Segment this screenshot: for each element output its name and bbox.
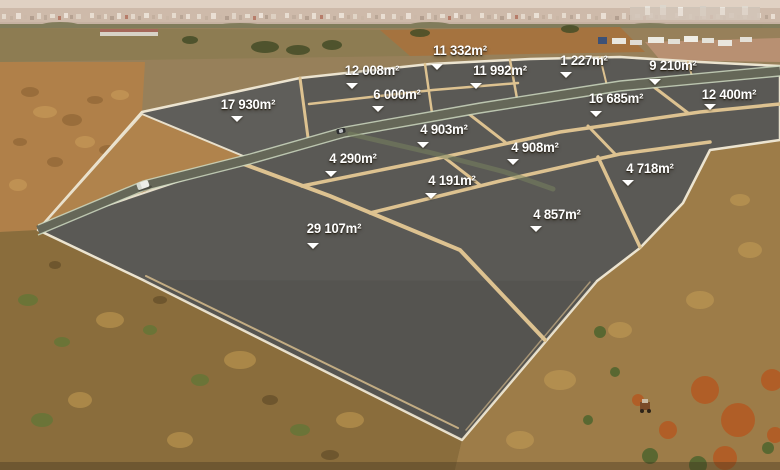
- plot-area-label: 29 107m²: [307, 222, 362, 236]
- plot-label-pointer: [425, 193, 437, 199]
- plot-label-pointer: [346, 83, 358, 89]
- plot-area-label: 11 992m²: [473, 64, 527, 78]
- plot-label-pointer: [704, 104, 716, 110]
- plot-area-label: 4 191m²: [428, 174, 475, 188]
- plot-label-pointer: [622, 180, 634, 186]
- plot-area-label: 4 903m²: [420, 123, 467, 137]
- plot-area-label: 4 718m²: [626, 162, 673, 176]
- plot-label-pointer: [530, 226, 542, 232]
- plot-labels-layer: 17 930m²12 008m²11 332m²11 992m²1 227m²9…: [0, 0, 780, 470]
- aerial-plot-visualization: 17 930m²12 008m²11 332m²11 992m²1 227m²9…: [0, 0, 780, 470]
- plot-label-pointer: [325, 171, 337, 177]
- plot-area-label: 12 400m²: [702, 88, 757, 102]
- plot-label-pointer: [649, 79, 661, 85]
- plot-area-label: 11 332m²: [433, 44, 487, 58]
- plot-label-pointer: [417, 142, 429, 148]
- plot-label-pointer: [560, 72, 572, 78]
- plot-area-label: 4 908m²: [511, 141, 558, 155]
- plot-label-pointer: [590, 111, 602, 117]
- plot-label-pointer: [431, 64, 443, 70]
- plot-area-label: 6 000m²: [373, 88, 420, 102]
- plot-label-pointer: [470, 83, 482, 89]
- plot-area-label: 17 930m²: [221, 98, 276, 112]
- plot-label-pointer: [372, 106, 384, 112]
- plot-area-label: 16 685m²: [589, 92, 644, 106]
- plot-area-label: 12 008m²: [345, 64, 400, 78]
- plot-area-label: 9 210m²: [649, 59, 696, 73]
- plot-area-label: 1 227m²: [560, 54, 607, 68]
- plot-label-pointer: [507, 159, 519, 165]
- plot-area-label: 4 290m²: [329, 152, 376, 166]
- plot-label-pointer: [231, 116, 243, 122]
- plot-area-label: 4 857m²: [533, 208, 580, 222]
- plot-label-pointer: [307, 243, 319, 249]
